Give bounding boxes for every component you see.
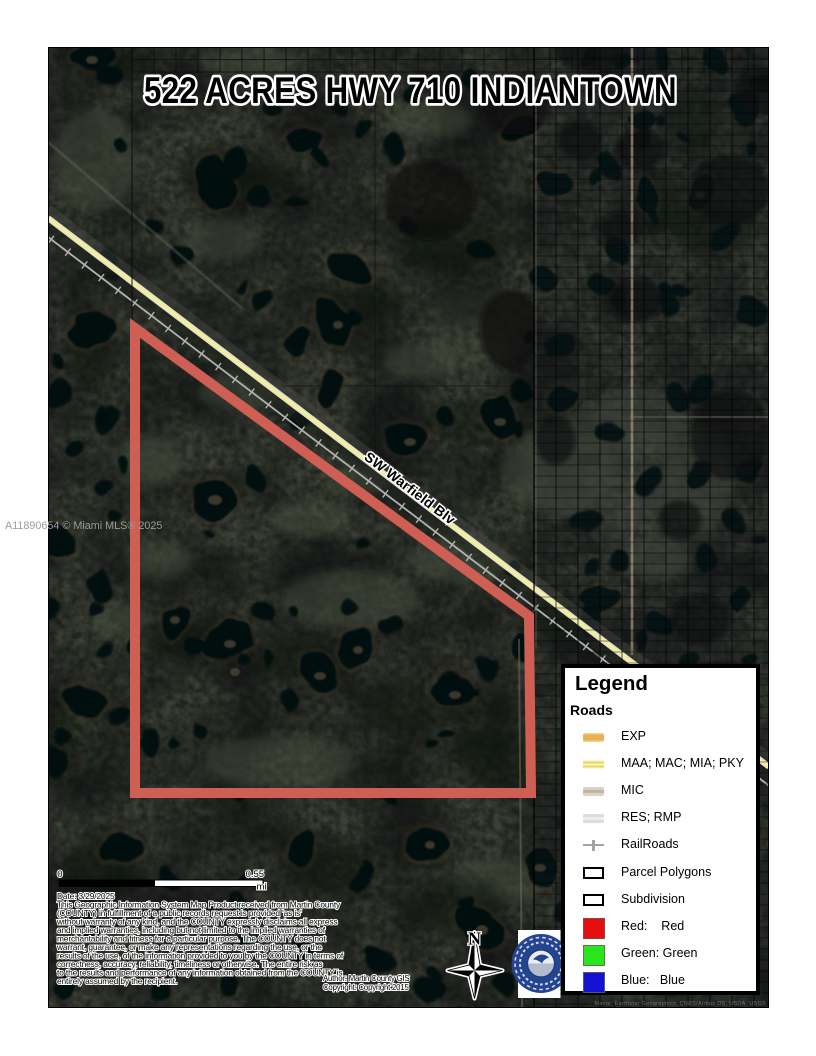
svg-text:0: 0 (57, 869, 62, 880)
svg-text:Author: Martin County GIS: Author: Martin County GIS (323, 974, 409, 983)
svg-text:522 ACRES HWY 710 INDIANTOWN: 522 ACRES HWY 710 INDIANTOWN (144, 70, 677, 111)
svg-text:0.55: 0.55 (246, 869, 265, 880)
svg-text:Maxar, Earthstar Geographics,: Maxar, Earthstar Geographics, CNES/Airbu… (595, 1001, 766, 1007)
svg-text:entirely assumed by the recipi: entirely assumed by the recipient. (57, 976, 177, 986)
svg-text:mi: mi (257, 882, 267, 893)
svg-text:Copyright: Copyright 2015: Copyright: Copyright 2015 (323, 983, 409, 992)
svg-text:N: N (468, 929, 481, 949)
